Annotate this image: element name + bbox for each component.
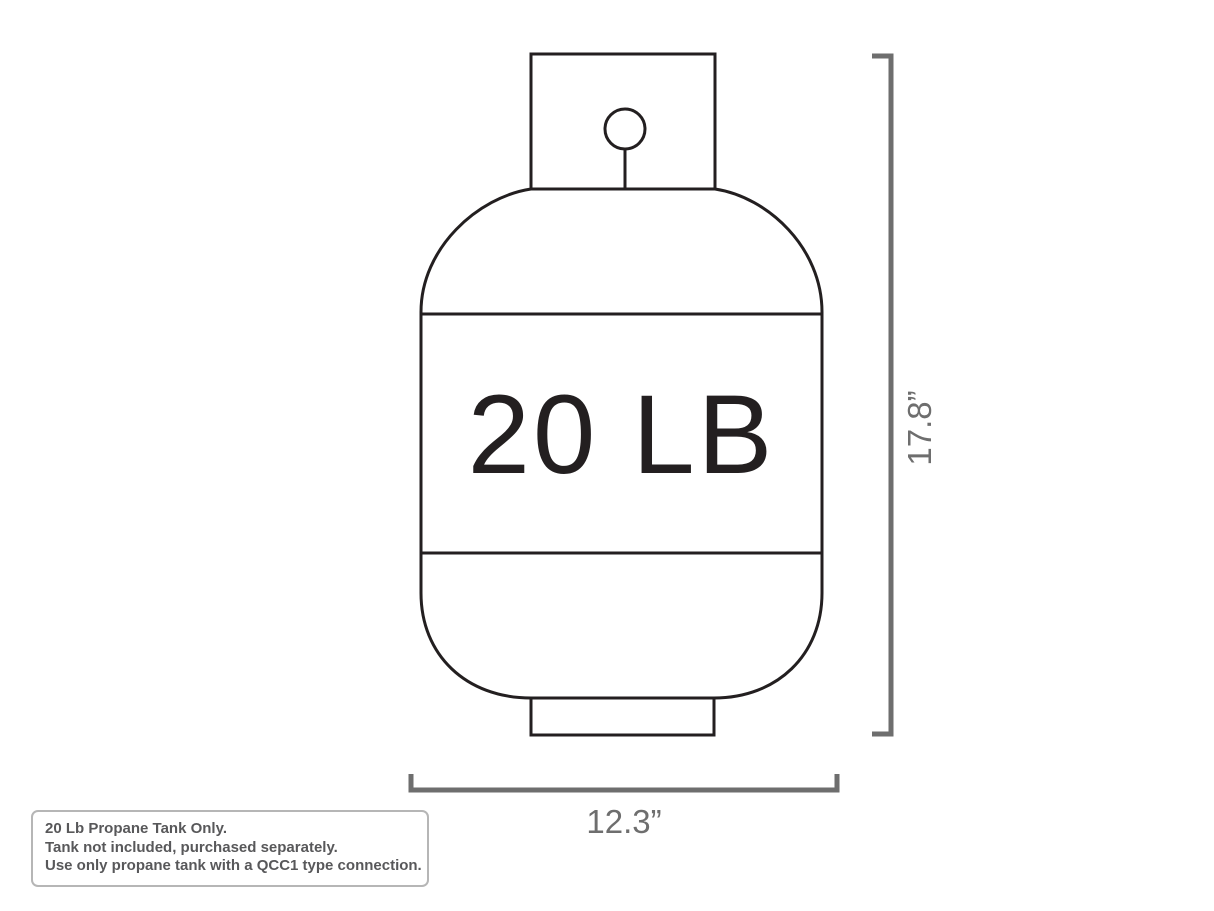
tank-collar (531, 54, 715, 189)
tank-capacity-label: 20 LB (421, 376, 822, 494)
note-box: 20 Lb Propane Tank Only. Tank not includ… (31, 810, 429, 887)
height-dimension-label: 17.8” (901, 390, 939, 465)
note-line-1: 20 Lb Propane Tank Only. (45, 820, 415, 839)
height-dimension-bracket (872, 56, 891, 734)
note-line-3: Use only propane tank with a QCC1 type c… (45, 857, 415, 876)
propane-tank-diagram: 20 LB 17.8” 12.3” 20 Lb Propane Tank Onl… (0, 0, 1214, 911)
width-dimension-bracket (411, 774, 837, 790)
tank-valve-circle (605, 109, 645, 149)
tank-foot-ring (531, 698, 714, 735)
note-line-2: Tank not included, purchased separately. (45, 839, 415, 858)
width-dimension-label: 12.3” (586, 803, 661, 841)
